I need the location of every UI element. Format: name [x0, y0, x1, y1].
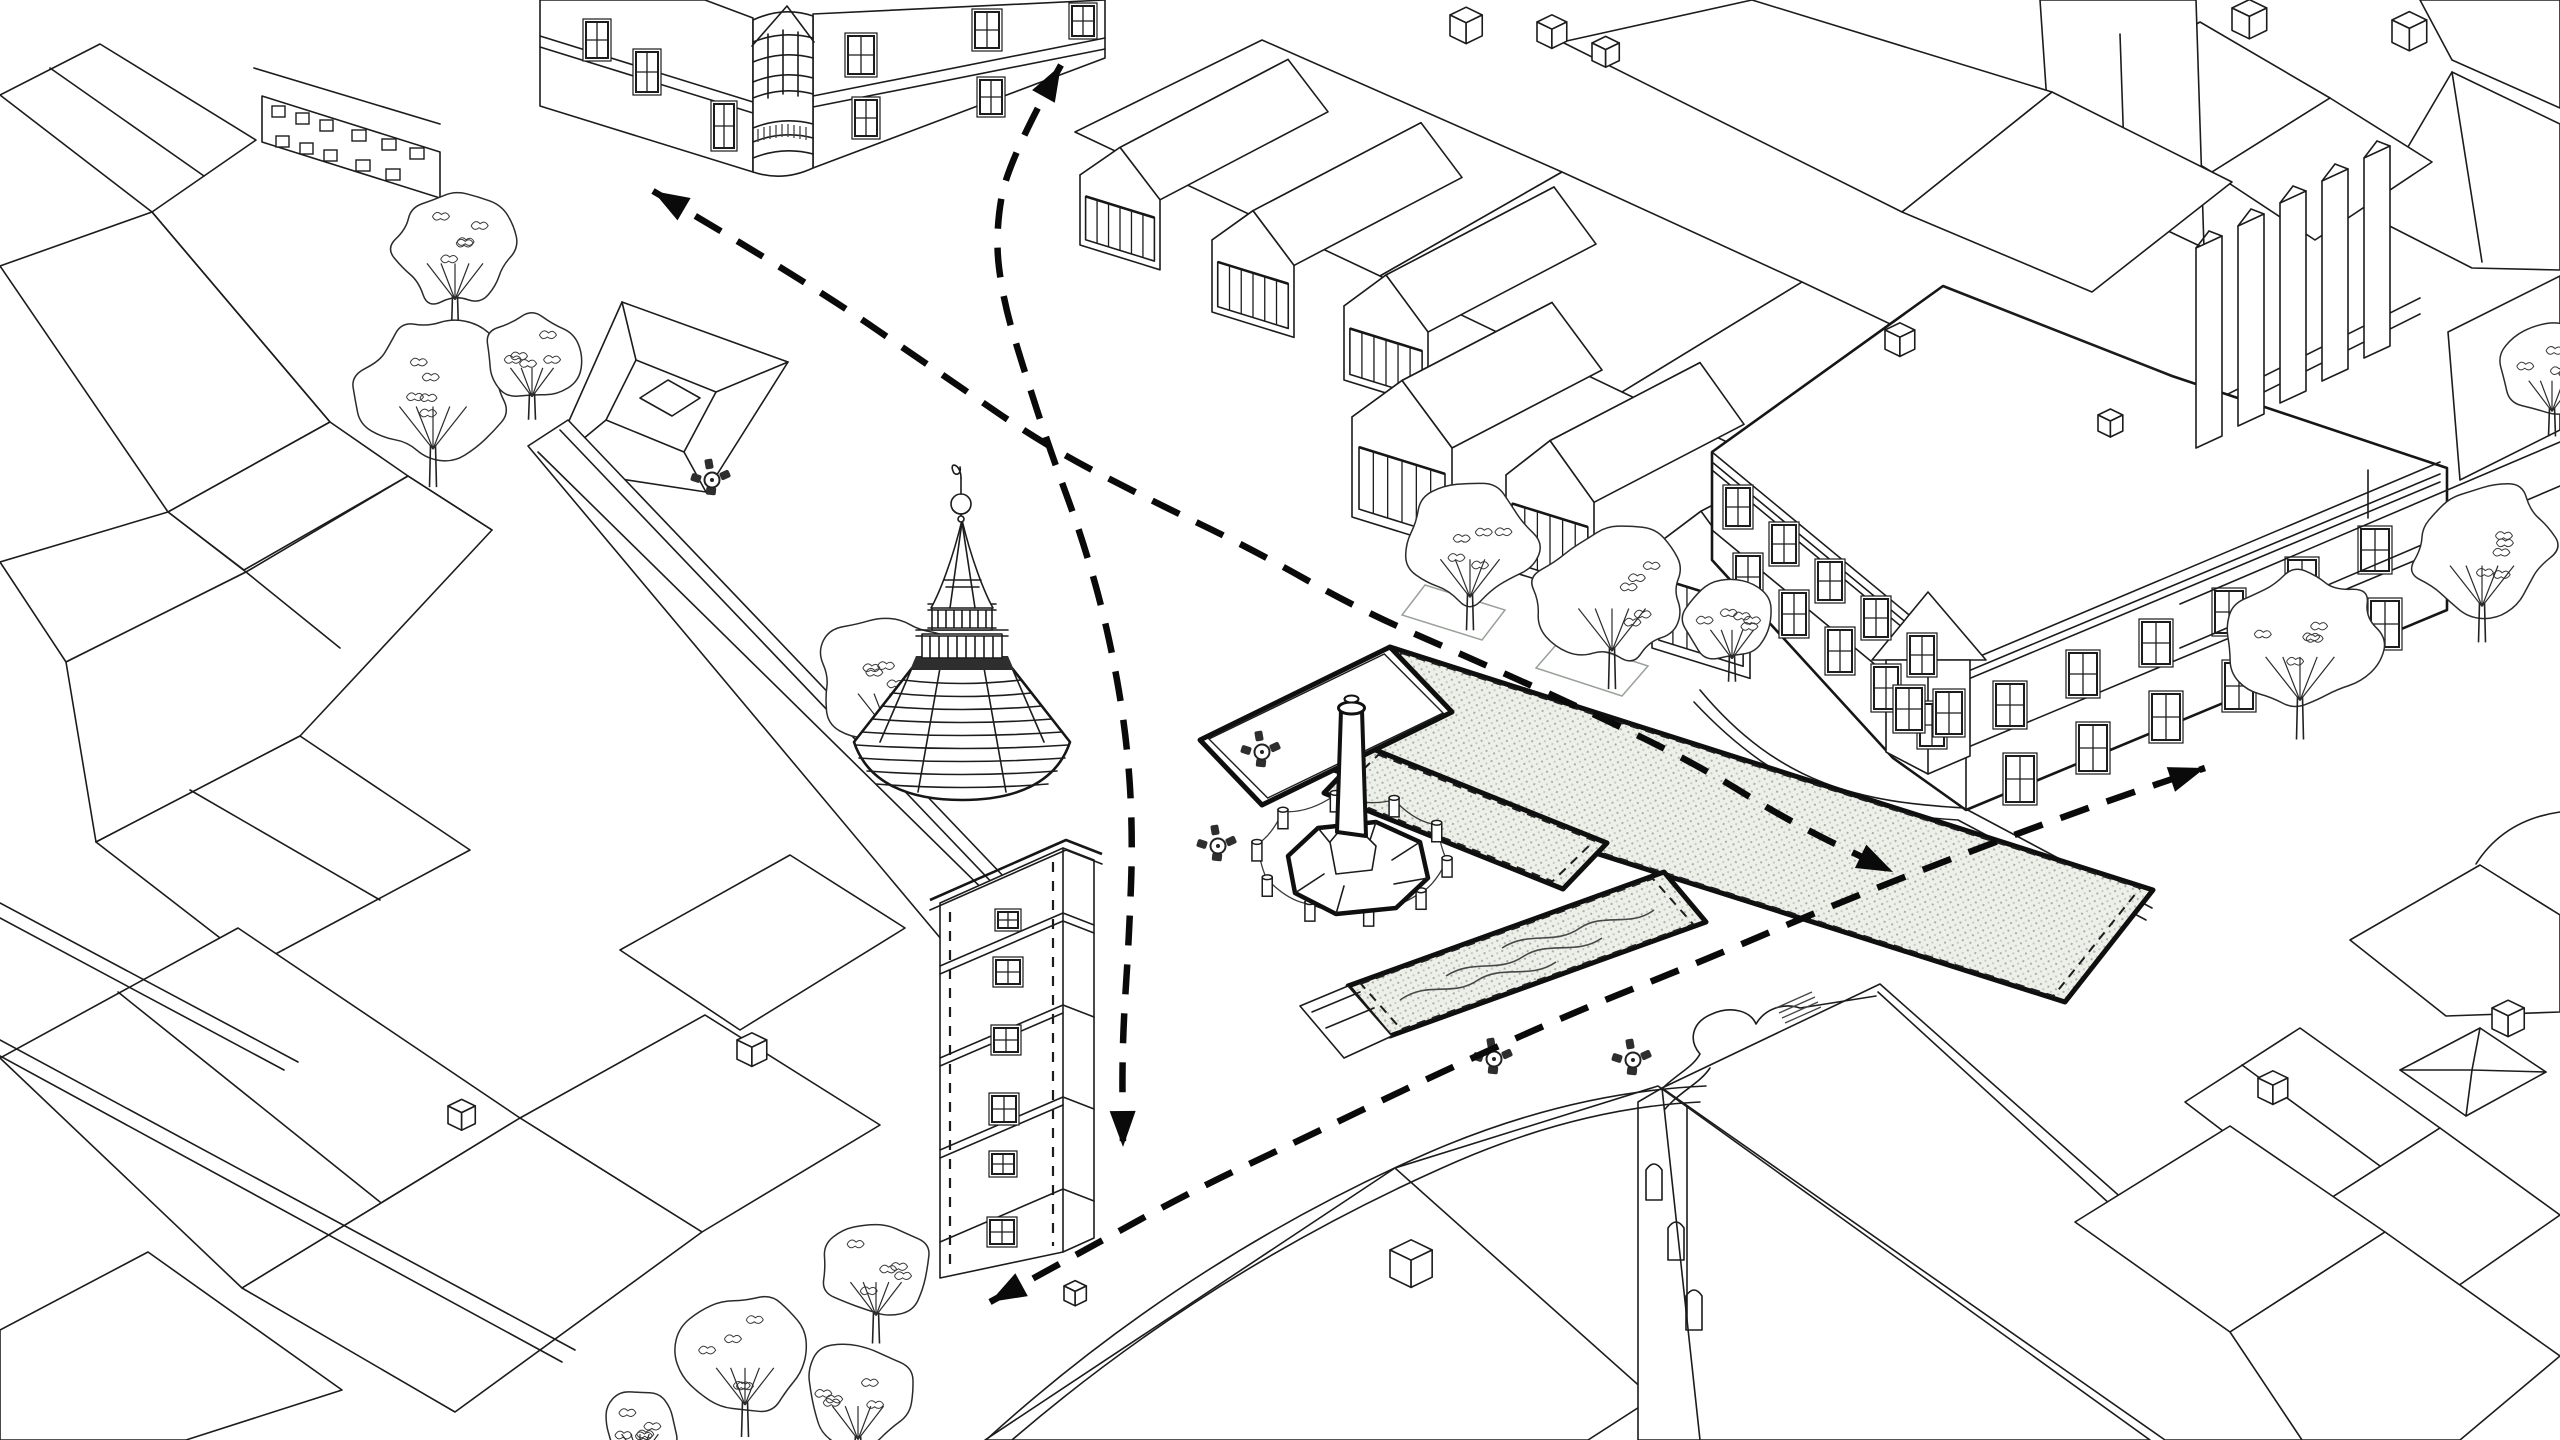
- bollard-top: [1278, 807, 1288, 812]
- small-window: [356, 160, 370, 171]
- small-window: [320, 120, 333, 131]
- tall-slab: [2238, 214, 2264, 426]
- table-center: [1216, 844, 1220, 848]
- small-window: [324, 150, 337, 161]
- tall-slab: [2322, 169, 2348, 381]
- small-window: [352, 130, 366, 141]
- small-window: [382, 139, 396, 150]
- tall-slab: [2196, 236, 2222, 448]
- column-capital: [1339, 702, 1365, 714]
- tall-slab: [2364, 146, 2390, 358]
- bollard-top: [1389, 795, 1399, 800]
- tall-slab: [2280, 191, 2306, 403]
- bollard-top: [1432, 820, 1442, 825]
- small-window: [300, 143, 313, 154]
- drawing-stage: [0, 0, 2560, 1440]
- small-window: [296, 113, 309, 124]
- table-center: [710, 478, 714, 482]
- small-window: [272, 106, 285, 117]
- table-center: [1492, 1057, 1496, 1061]
- table-center: [1260, 750, 1264, 754]
- small-window: [386, 169, 400, 180]
- bollard-top: [1442, 856, 1452, 861]
- column-knob: [1345, 696, 1359, 703]
- small-window: [276, 136, 289, 147]
- bollard-top: [1252, 840, 1262, 845]
- lantern: [922, 634, 1002, 658]
- small-window: [410, 148, 424, 159]
- bollard-top: [1262, 875, 1272, 880]
- monument-column: [1337, 710, 1366, 836]
- axonometric-town-square-drawing: [0, 0, 2560, 1440]
- table-center: [1631, 1058, 1635, 1062]
